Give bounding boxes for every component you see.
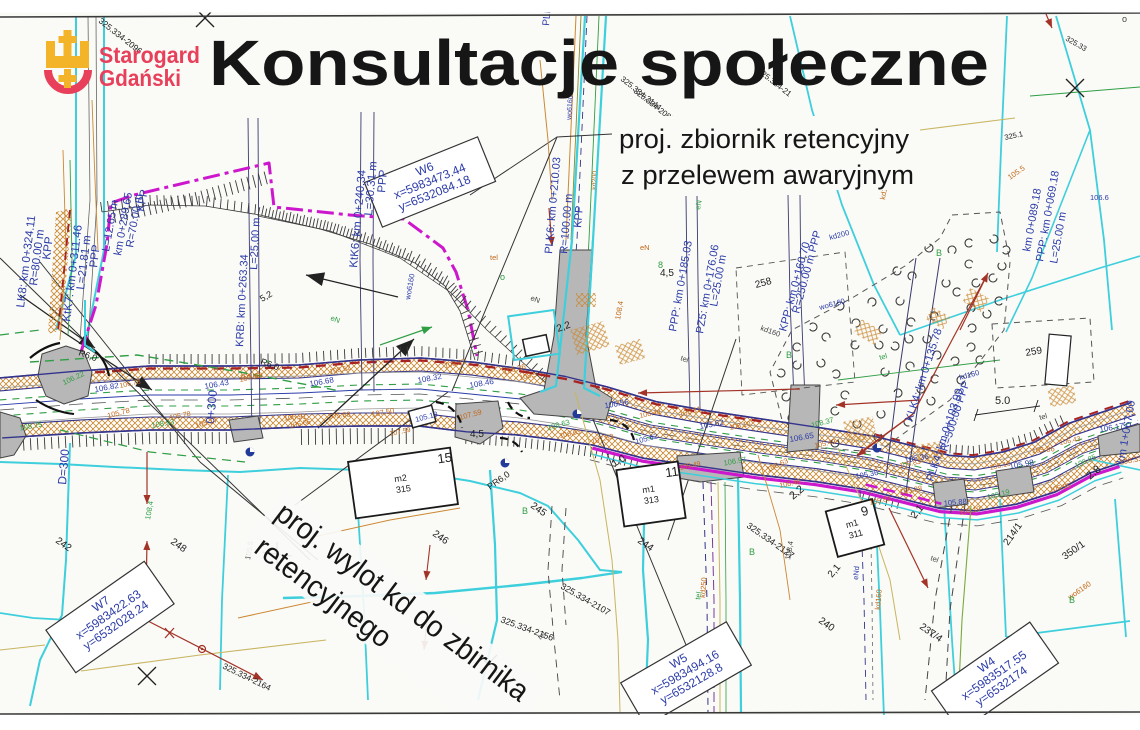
svg-text:m1: m1: [642, 483, 656, 495]
svg-text:B: B: [1069, 595, 1075, 605]
svg-text:106.6: 106.6: [1090, 193, 1109, 202]
svg-text:z przelewem awaryjnym: z przelewem awaryjnym: [621, 160, 914, 190]
svg-text:KPP: KPP: [572, 205, 586, 228]
svg-text:proj. zbiornik retencyjny: proj. zbiornik retencyjny: [619, 124, 910, 154]
svg-text:Konsultacje społeczne: Konsultacje społeczne: [209, 27, 989, 99]
svg-text:o: o: [500, 272, 505, 282]
svg-text:11: 11: [664, 464, 679, 481]
svg-text:15: 15: [436, 450, 452, 467]
svg-text:4,5: 4,5: [470, 429, 484, 440]
svg-text:m2: m2: [394, 472, 408, 484]
svg-text:5.0: 5.0: [995, 395, 1010, 407]
svg-text:tel: tel: [490, 253, 498, 262]
svg-text:8: 8: [658, 260, 663, 270]
svg-text:313: 313: [643, 494, 659, 506]
svg-text:PPP: PPP: [376, 169, 390, 193]
svg-text:B: B: [936, 248, 942, 258]
svg-text:eNd: eNd: [851, 566, 861, 580]
svg-text:kd160: kd160: [873, 589, 884, 610]
svg-text:B: B: [749, 547, 755, 557]
svg-text:eN: eN: [693, 199, 704, 210]
svg-text:315: 315: [395, 483, 411, 495]
svg-text:o: o: [1122, 14, 1127, 24]
svg-text:Gdański: Gdański: [99, 65, 181, 91]
svg-text:eN: eN: [640, 243, 650, 252]
svg-text:*: *: [266, 358, 270, 368]
svg-text:B: B: [522, 506, 528, 516]
svg-text:B: B: [786, 350, 792, 360]
